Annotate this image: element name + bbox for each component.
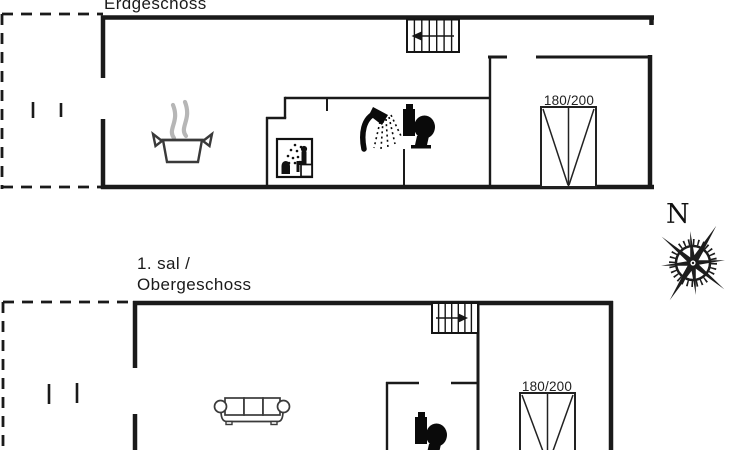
compass-rose xyxy=(661,226,725,301)
balcony-dashed-outline xyxy=(3,302,133,450)
floorplan-drawing xyxy=(0,0,730,450)
stairs-icon xyxy=(407,20,459,53)
floorplan-page: Erdgeschoss 1. sal / Obergeschoss 180/20… xyxy=(0,0,730,450)
cooking-pot-icon xyxy=(153,102,212,162)
sofa-arm-left xyxy=(215,401,227,413)
sofa-arm-right xyxy=(278,401,290,413)
sauna-icon xyxy=(277,139,312,177)
bed-size-label: 180/200 xyxy=(519,379,575,394)
toilet-icon xyxy=(403,104,435,149)
window-marks xyxy=(33,102,61,118)
stairs-icon xyxy=(432,303,478,333)
erdgeschoss-title: Erdgeschoss xyxy=(104,0,207,14)
double-bed-symbol xyxy=(541,107,596,187)
steam-waves xyxy=(172,102,187,138)
compass-north-label: N xyxy=(666,199,690,230)
sofa-icon xyxy=(215,398,290,425)
toilet-icon xyxy=(415,412,447,450)
double-bed-symbol xyxy=(520,393,575,450)
terrace-dashed-outline xyxy=(2,14,103,189)
obergeschoss-title-line2: Obergeschoss xyxy=(137,275,251,295)
bed-size-label: 180/200 xyxy=(541,93,597,108)
obergeschoss-title-line1: 1. sal / xyxy=(137,254,190,274)
obergeschoss-plan xyxy=(3,301,613,450)
window-marks xyxy=(49,383,77,404)
shower-icon xyxy=(363,107,401,149)
